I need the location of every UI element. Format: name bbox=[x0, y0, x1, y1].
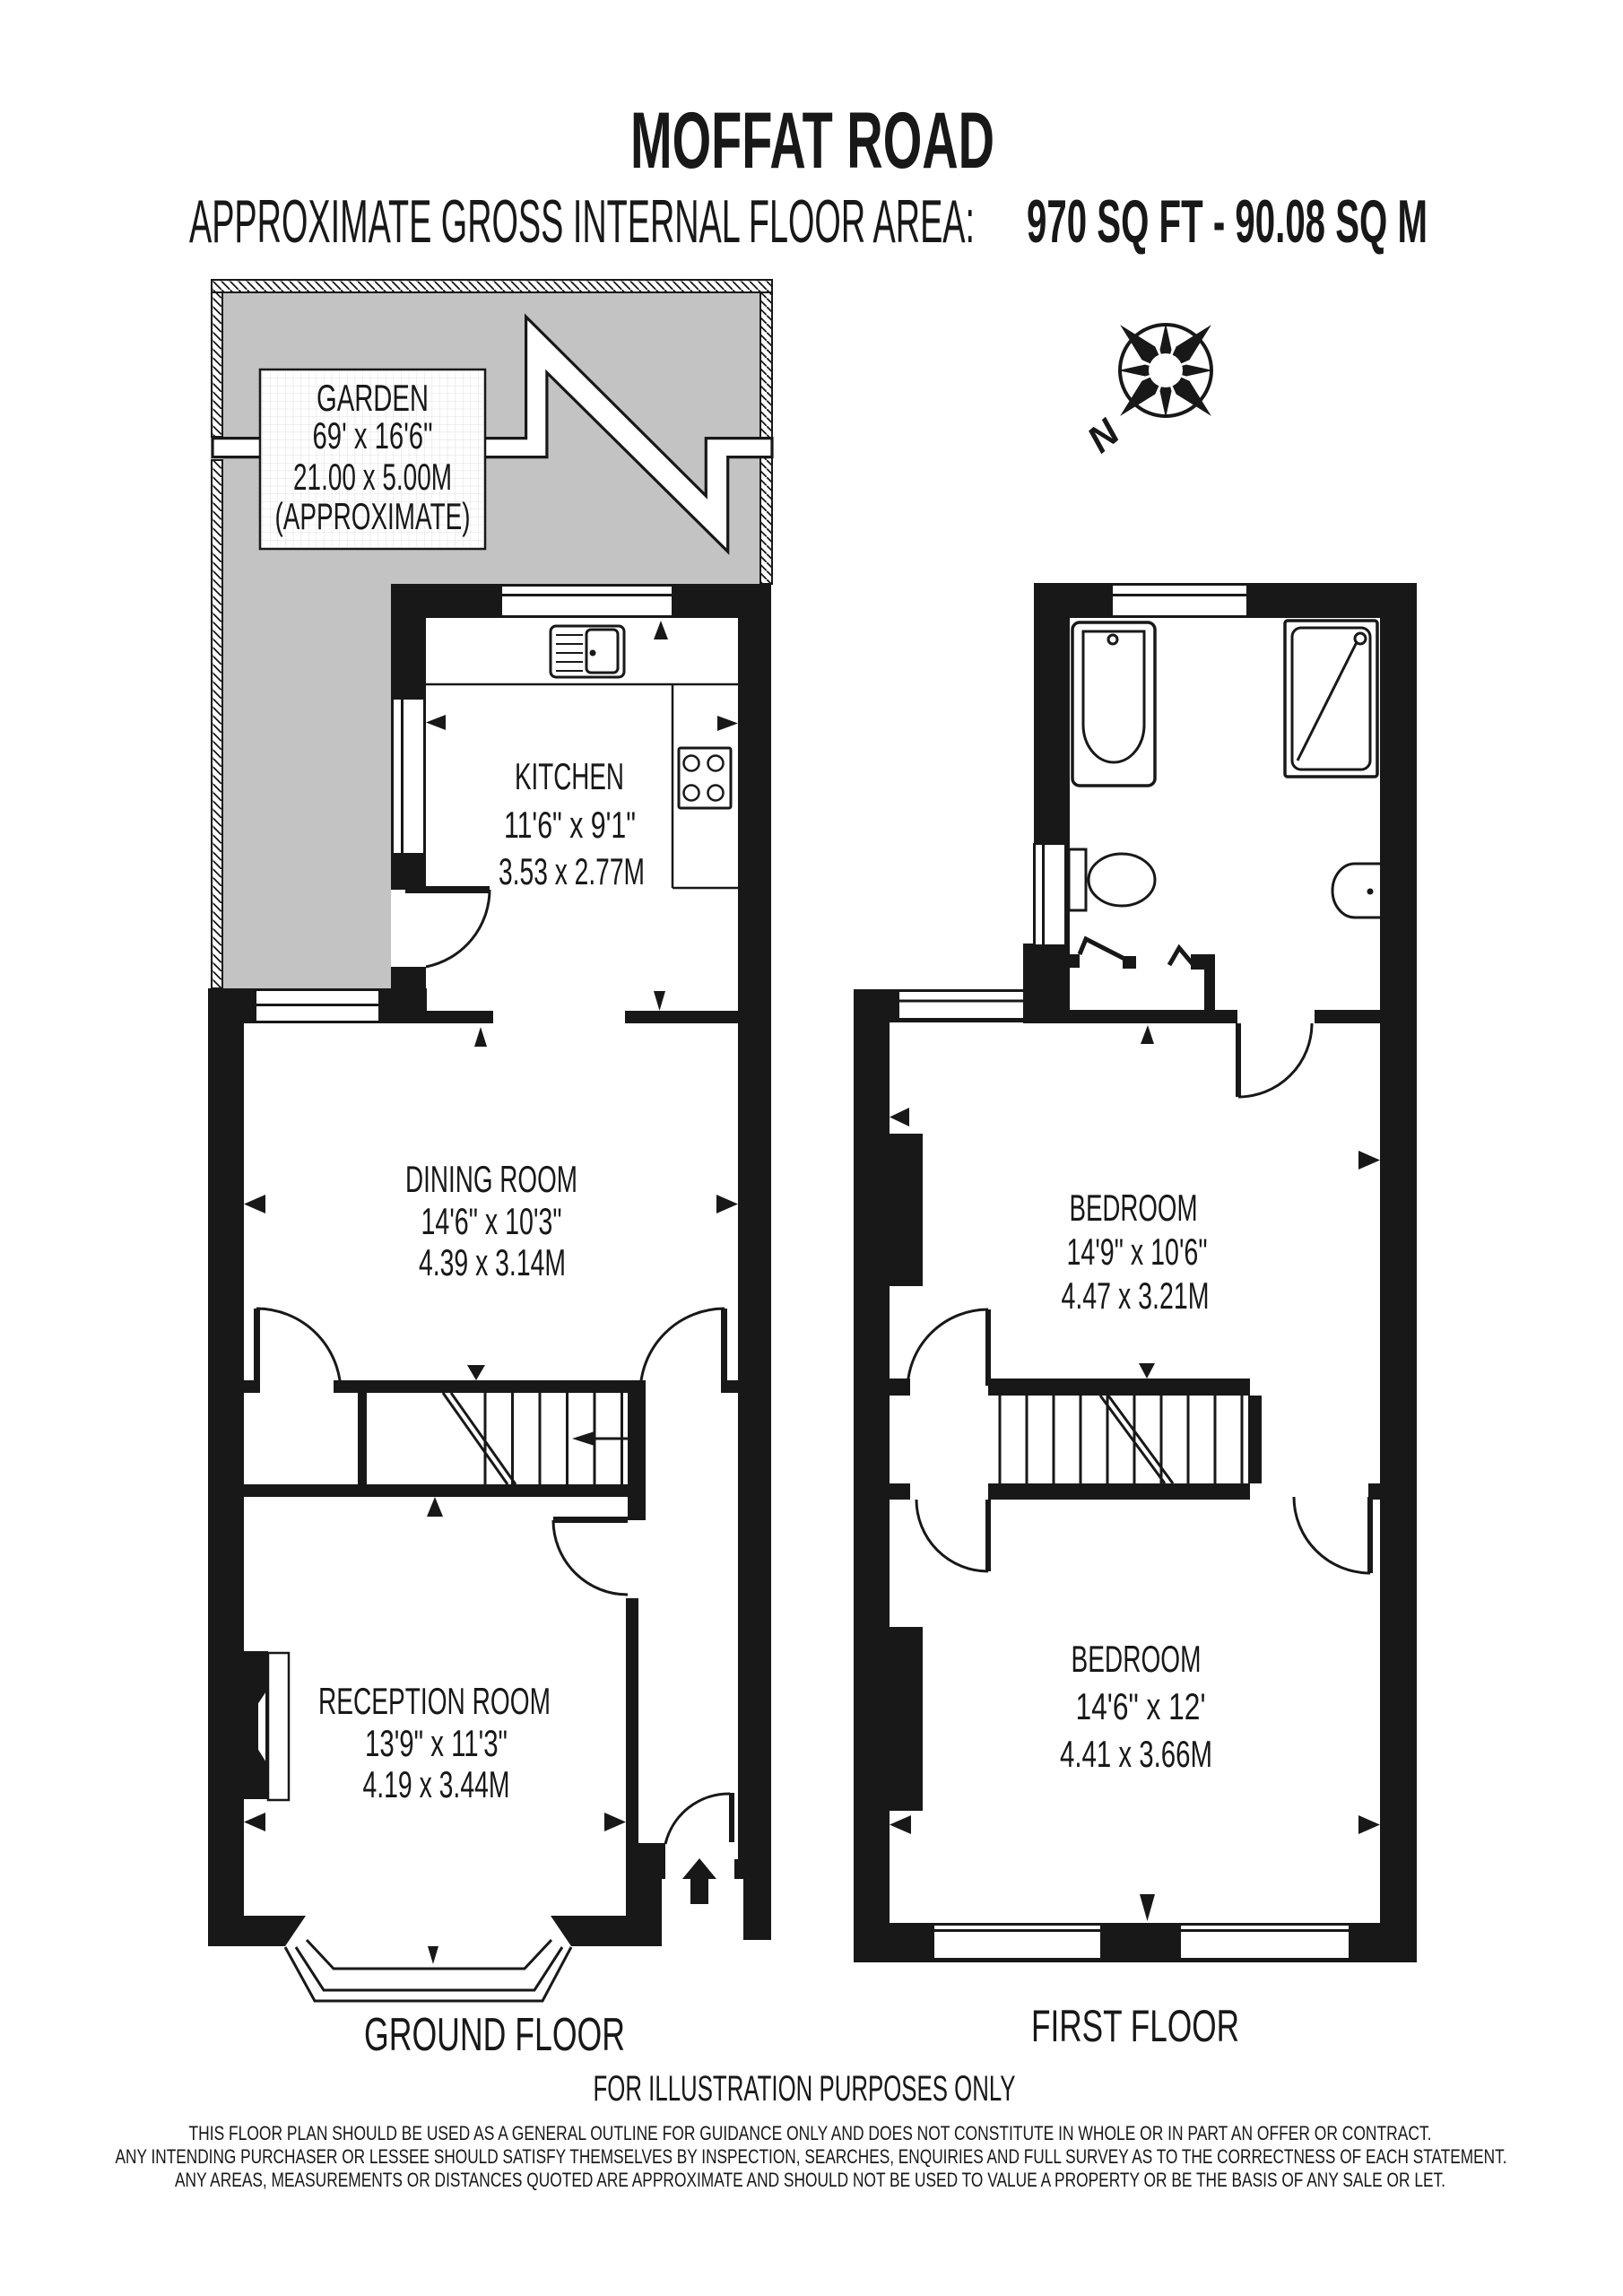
svg-text:N: N bbox=[1079, 410, 1128, 461]
svg-text:14'6" x 12': 14'6" x 12' bbox=[1076, 1685, 1206, 1727]
svg-text:4.39 x 3.14M: 4.39 x 3.14M bbox=[419, 1241, 566, 1283]
svg-text:GARDEN: GARDEN bbox=[317, 377, 429, 419]
svg-text:14'6" x 10'3": 14'6" x 10'3" bbox=[421, 1200, 562, 1242]
svg-text:4.19 x 3.44M: 4.19 x 3.44M bbox=[363, 1763, 510, 1805]
svg-text:APPROXIMATE GROSS INTERNAL FLO: APPROXIMATE GROSS INTERNAL FLOOR AREA: bbox=[189, 187, 975, 256]
svg-text:ANY AREAS, MEASUREMENTS OR DIS: ANY AREAS, MEASUREMENTS OR DISTANCES QUO… bbox=[175, 2169, 1445, 2191]
svg-text:RECEPTION ROOM: RECEPTION ROOM bbox=[318, 1680, 551, 1722]
svg-text:GROUND FLOOR: GROUND FLOOR bbox=[364, 2009, 625, 2061]
svg-text:970 SQ FT - 90.08 SQ M: 970 SQ FT - 90.08 SQ M bbox=[1027, 187, 1428, 256]
svg-text:THIS FLOOR PLAN SHOULD BE USED: THIS FLOOR PLAN SHOULD BE USED AS A GENE… bbox=[189, 2122, 1432, 2144]
svg-text:KITCHEN: KITCHEN bbox=[515, 755, 624, 797]
svg-text:21.00 x 5.00M: 21.00 x 5.00M bbox=[293, 456, 452, 498]
svg-text:BEDROOM: BEDROOM bbox=[1070, 1187, 1198, 1229]
svg-text:FOR ILLUSTRATION PURPOSES ONLY: FOR ILLUSTRATION PURPOSES ONLY bbox=[594, 2069, 1016, 2109]
svg-text:ANY INTENDING PURCHASER OR LES: ANY INTENDING PURCHASER OR LESSEE SHOULD… bbox=[116, 2145, 1507, 2168]
svg-text:FIRST FLOOR: FIRST FLOOR bbox=[1031, 2001, 1239, 2051]
svg-text:(APPROXIMATE): (APPROXIMATE) bbox=[275, 495, 471, 537]
svg-text:4.41 x 3.66M: 4.41 x 3.66M bbox=[1060, 1733, 1212, 1775]
svg-text:4.47 x 3.21M: 4.47 x 3.21M bbox=[1062, 1274, 1210, 1317]
svg-text:11'6" x 9'1": 11'6" x 9'1" bbox=[504, 804, 636, 846]
svg-text:BEDROOM: BEDROOM bbox=[1072, 1638, 1202, 1680]
svg-text:14'9" x 10'6": 14'9" x 10'6" bbox=[1067, 1231, 1208, 1273]
svg-text:MOFFAT ROAD: MOFFAT ROAD bbox=[630, 95, 994, 185]
svg-text:DINING ROOM: DINING ROOM bbox=[405, 1158, 577, 1200]
svg-text:69' x 16'6": 69' x 16'6" bbox=[313, 414, 433, 457]
svg-text:3.53 x 2.77M: 3.53 x 2.77M bbox=[499, 850, 645, 892]
svg-text:13'9" x 11'3": 13'9" x 11'3" bbox=[365, 1722, 508, 1764]
